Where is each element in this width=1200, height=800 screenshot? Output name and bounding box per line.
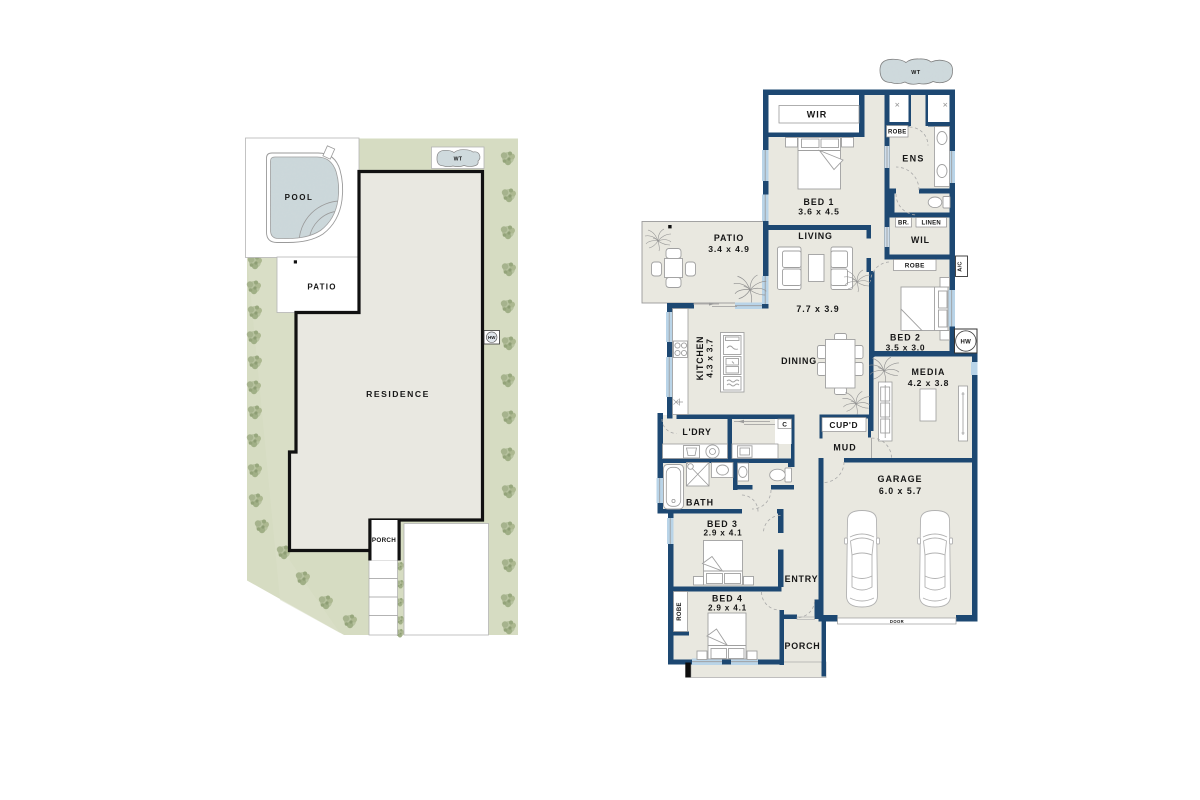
- svg-text:A/C: A/C: [958, 261, 964, 271]
- svg-text:HW: HW: [488, 335, 496, 340]
- svg-text:3.5 x 3.0: 3.5 x 3.0: [886, 342, 926, 352]
- svg-text:PATIO: PATIO: [714, 233, 744, 243]
- svg-text:WIR: WIR: [807, 110, 828, 120]
- svg-text:ROBE: ROBE: [905, 263, 925, 270]
- svg-text:DOOR: DOOR: [890, 619, 904, 624]
- svg-text:4.3 x 3.7: 4.3 x 3.7: [705, 338, 715, 377]
- svg-text:DINING: DINING: [781, 356, 817, 366]
- svg-text:POOL: POOL: [285, 193, 314, 202]
- svg-text:3.4 x 4.9: 3.4 x 4.9: [708, 244, 750, 254]
- svg-text:HW: HW: [960, 340, 971, 346]
- svg-text:BR.: BR.: [898, 221, 909, 227]
- svg-text:BED 4: BED 4: [712, 593, 743, 603]
- svg-text:ROBE: ROBE: [677, 602, 683, 621]
- svg-text:L'DRY: L'DRY: [682, 427, 711, 437]
- svg-text:PORCH: PORCH: [372, 537, 396, 544]
- svg-text:RESIDENCE: RESIDENCE: [366, 389, 430, 399]
- svg-text:ENS: ENS: [902, 154, 924, 164]
- svg-text:WT: WT: [911, 70, 921, 76]
- svg-text:C: C: [782, 421, 787, 428]
- svg-text:2.9 x 4.1: 2.9 x 4.1: [708, 603, 747, 612]
- svg-text:WT: WT: [454, 156, 463, 162]
- svg-text:GARAGE: GARAGE: [878, 474, 923, 484]
- svg-text:BED 2: BED 2: [890, 332, 921, 342]
- svg-text:7.7 x 3.9: 7.7 x 3.9: [796, 304, 839, 314]
- svg-text:BATH: BATH: [686, 497, 714, 507]
- svg-text:KITCHEN: KITCHEN: [695, 336, 705, 381]
- svg-text:LINEN: LINEN: [922, 221, 942, 227]
- svg-text:4.2 x 3.8: 4.2 x 3.8: [908, 378, 950, 388]
- svg-text:PORCH: PORCH: [784, 641, 820, 651]
- svg-text:ROBE: ROBE: [888, 130, 907, 136]
- svg-text:MEDIA: MEDIA: [911, 367, 945, 377]
- svg-text:BED 1: BED 1: [804, 197, 835, 207]
- svg-text:BED 3: BED 3: [707, 519, 738, 529]
- svg-text:MUD: MUD: [833, 442, 856, 452]
- svg-text:CUP'D: CUP'D: [829, 420, 858, 430]
- svg-text:6.0 x 5.7: 6.0 x 5.7: [879, 486, 922, 496]
- svg-text:3.6 x 4.5: 3.6 x 4.5: [798, 207, 840, 217]
- svg-text:ENTRY: ENTRY: [785, 574, 819, 584]
- svg-text:LIVING: LIVING: [798, 231, 832, 241]
- svg-text:WIL: WIL: [911, 235, 930, 245]
- svg-text:2.9 x 4.1: 2.9 x 4.1: [703, 528, 742, 537]
- svg-text:PATIO: PATIO: [307, 283, 336, 292]
